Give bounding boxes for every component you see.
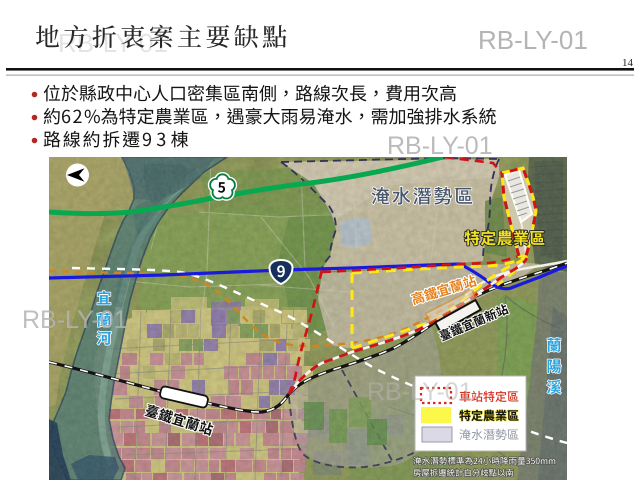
svg-text:RB-LY-01: RB-LY-01	[22, 306, 128, 334]
svg-text:RB-LY-01: RB-LY-01	[387, 132, 493, 160]
svg-text:RB-LY-01: RB-LY-01	[367, 378, 473, 406]
svg-text:14: 14	[622, 57, 634, 69]
svg-text:RB-LY-01: RB-LY-01	[478, 25, 588, 55]
